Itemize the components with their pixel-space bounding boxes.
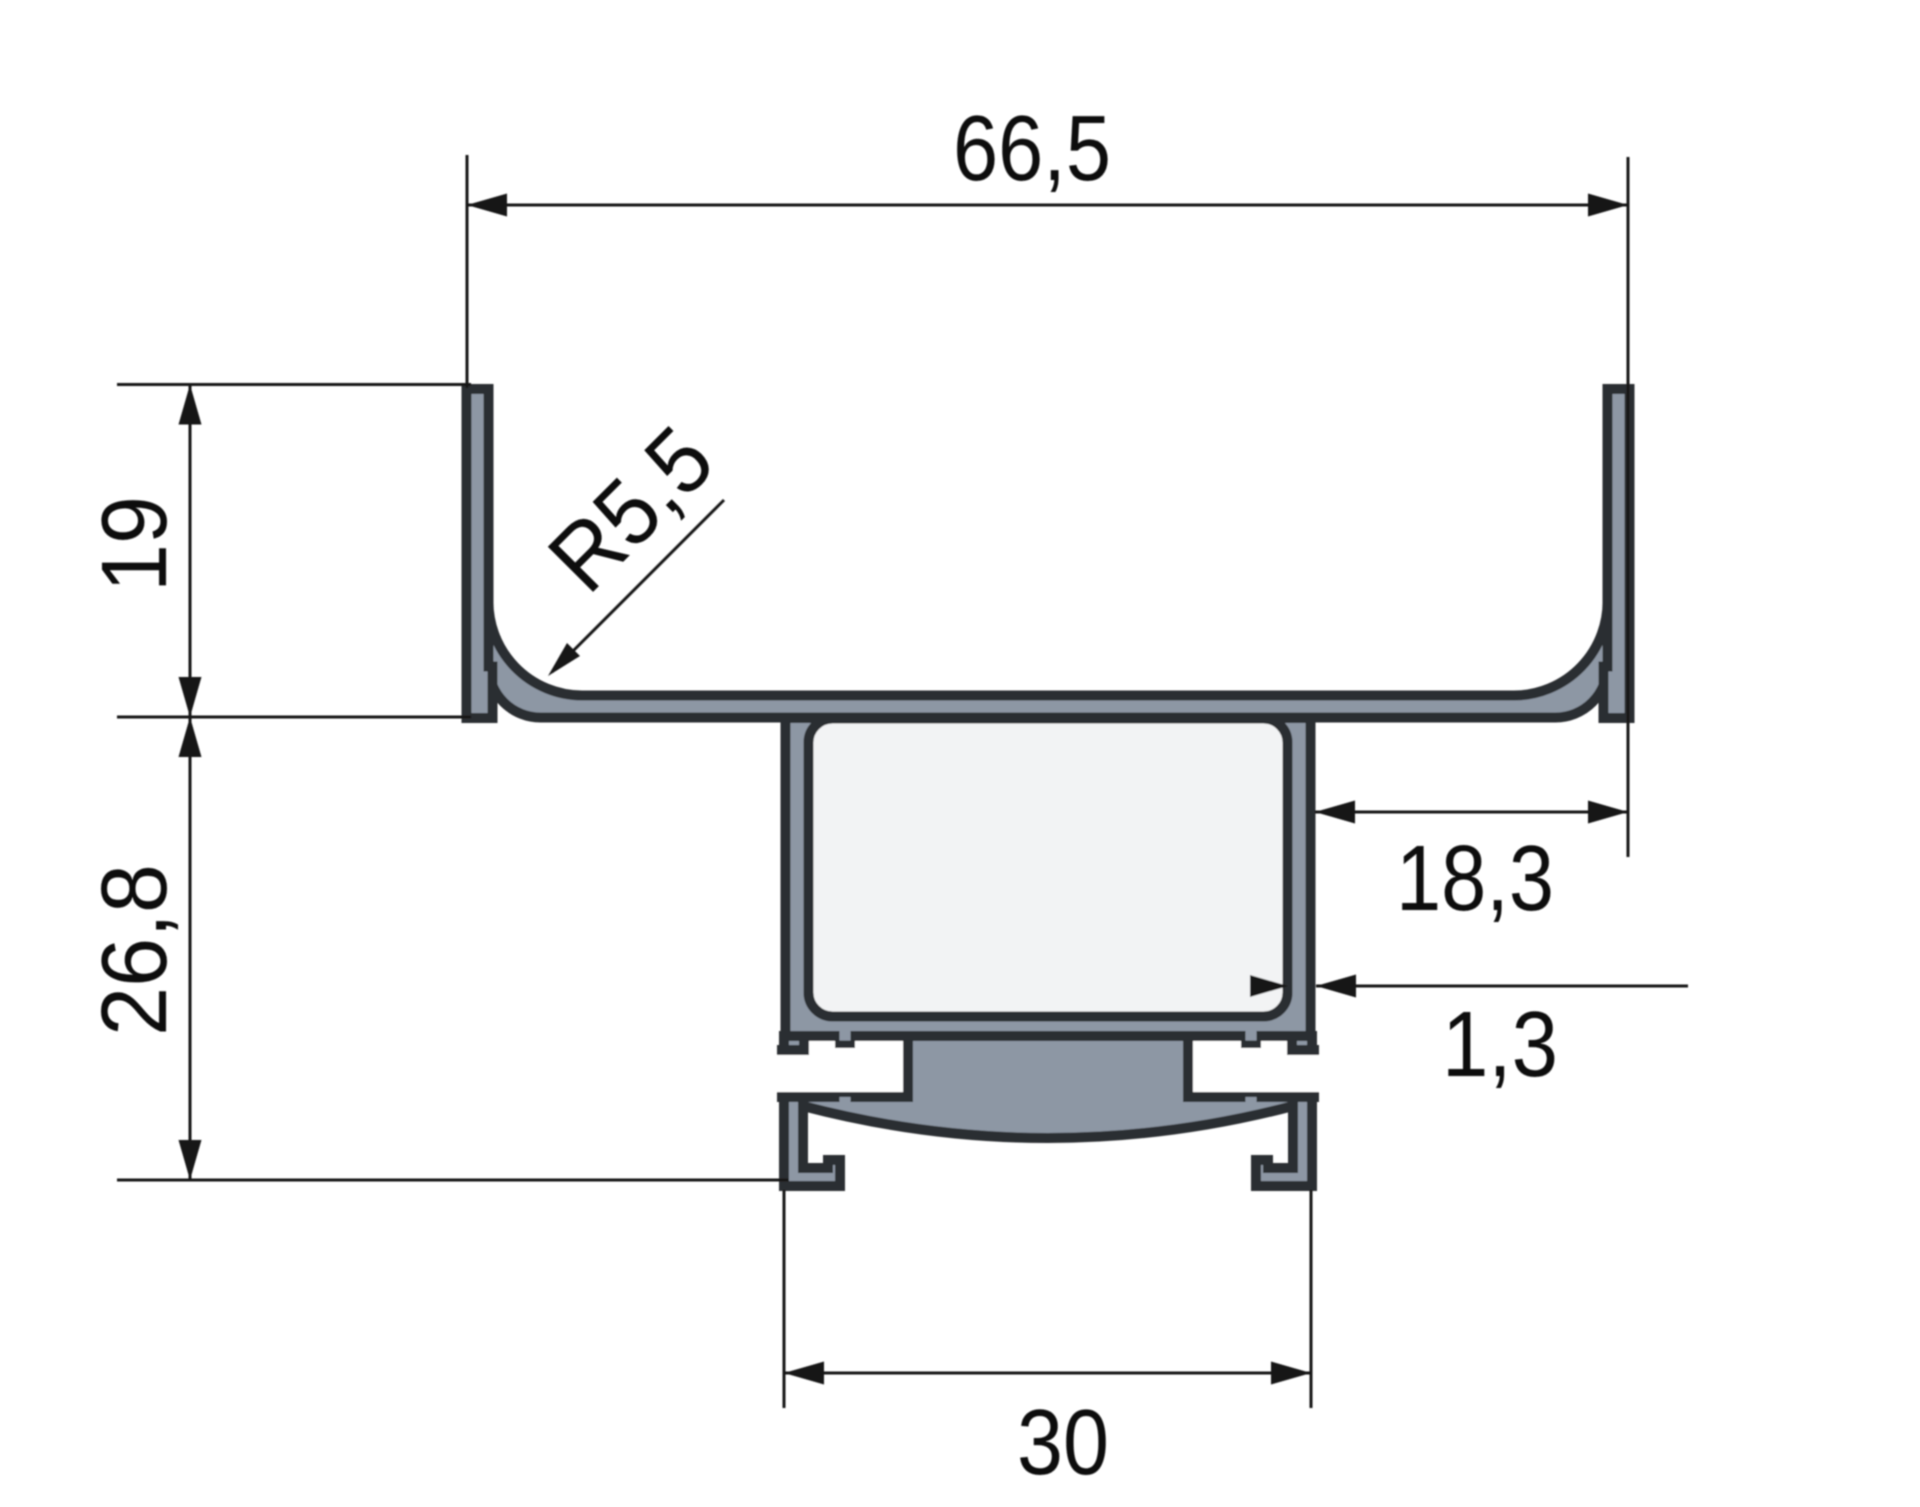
svg-text:1,3: 1,3 <box>1442 992 1558 1096</box>
svg-text:66,5: 66,5 <box>953 96 1111 200</box>
svg-text:30: 30 <box>1017 1390 1109 1494</box>
svg-text:18,3: 18,3 <box>1396 826 1554 930</box>
svg-text:26,8: 26,8 <box>82 864 186 1036</box>
svg-text:19: 19 <box>82 496 186 592</box>
